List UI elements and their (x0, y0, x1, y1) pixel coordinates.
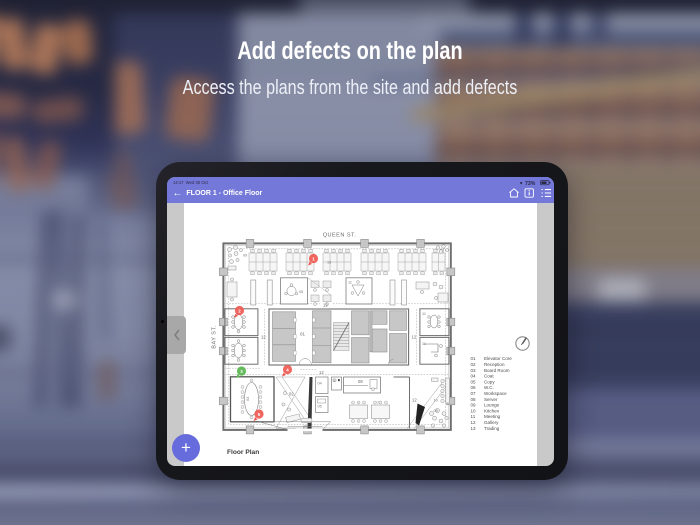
svg-text:12: 12 (323, 303, 328, 308)
svg-text:W.C.: W.C. (484, 385, 494, 390)
svg-text:BAY ST.: BAY ST. (212, 325, 218, 348)
svg-text:07: 07 (471, 391, 477, 396)
svg-text:Board Room: Board Room (484, 368, 510, 373)
svg-text:04: 04 (471, 374, 477, 379)
svg-text:6: 6 (334, 379, 336, 383)
svg-text:05: 05 (471, 379, 477, 384)
svg-text:02: 02 (289, 392, 294, 397)
svg-text:12: 12 (412, 398, 417, 403)
svg-text:Elevator Core: Elevator Core (484, 356, 512, 361)
svg-text:13: 13 (327, 261, 331, 265)
svg-text:09: 09 (434, 409, 438, 413)
svg-text:Copy: Copy (484, 379, 495, 384)
svg-text:08: 08 (358, 379, 363, 384)
svg-text:11: 11 (348, 281, 352, 285)
svg-text:05: 05 (318, 405, 322, 409)
svg-text:73%: 73% (525, 181, 536, 186)
svg-text:03: 03 (246, 397, 250, 401)
svg-text:09: 09 (243, 254, 247, 258)
svg-text:7: 7 (377, 401, 379, 405)
svg-text:Kitchen: Kitchen (484, 408, 500, 413)
svg-text:Meeting: Meeting (484, 414, 501, 419)
svg-text:01: 01 (300, 332, 305, 337)
svg-text:11: 11 (471, 414, 476, 419)
svg-text:05: 05 (299, 290, 303, 294)
svg-text:12: 12 (319, 370, 324, 375)
svg-text:Reception: Reception (484, 362, 505, 367)
svg-text:09: 09 (471, 403, 477, 408)
svg-text:Gallery: Gallery (484, 420, 499, 425)
svg-text:11: 11 (422, 342, 426, 346)
svg-text:02: 02 (471, 362, 477, 367)
svg-text:10: 10 (434, 399, 438, 403)
svg-text:QUEEN ST.: QUEEN ST. (323, 233, 357, 239)
svg-text:Coat: Coat (484, 374, 494, 379)
svg-text:11: 11 (422, 312, 426, 316)
svg-text:Lounge: Lounge (484, 403, 500, 408)
svg-text:12: 12 (471, 420, 477, 425)
svg-text:06: 06 (471, 385, 477, 390)
svg-text:Workspace: Workspace (484, 391, 507, 396)
svg-text:08: 08 (471, 397, 477, 402)
svg-text:03: 03 (471, 368, 477, 373)
svg-text:04: 04 (318, 382, 322, 386)
svg-text:01: 01 (471, 356, 477, 361)
svg-text:Trading: Trading (484, 426, 500, 431)
svg-text:10: 10 (471, 408, 477, 413)
svg-text:13: 13 (471, 426, 477, 431)
svg-text:Server: Server (484, 397, 498, 402)
svg-text:12: 12 (261, 334, 266, 339)
svg-text:12: 12 (412, 334, 417, 339)
